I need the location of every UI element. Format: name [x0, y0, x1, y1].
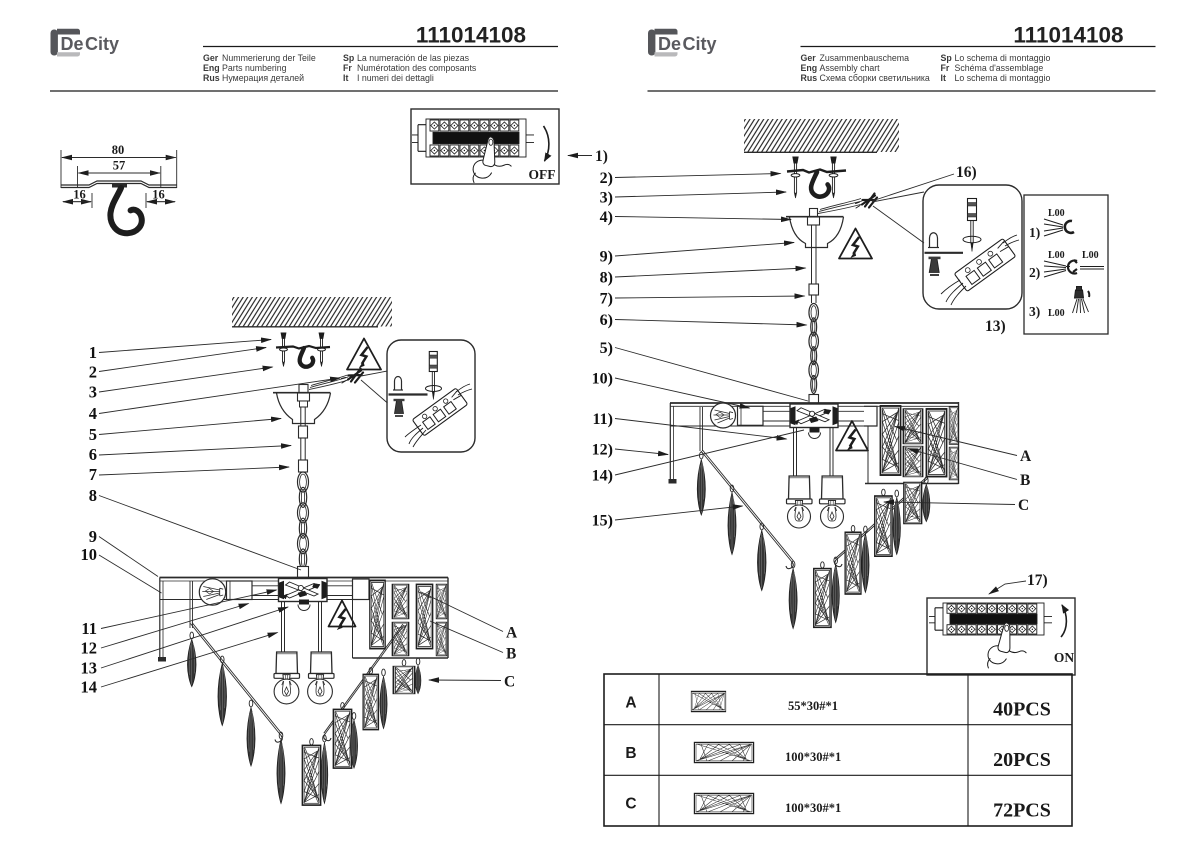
svg-text:Схема сборки светильника: Схема сборки светильника [820, 73, 930, 83]
svg-text:Eng: Eng [801, 63, 818, 73]
svg-text:Ger: Ger [801, 53, 817, 63]
svg-text:C: C [504, 674, 515, 691]
svg-text:2): 2) [1029, 265, 1040, 280]
svg-text:7: 7 [89, 465, 97, 484]
svg-text:10: 10 [81, 545, 98, 564]
svg-text:100*30#*1: 100*30#*1 [785, 750, 841, 764]
svg-text:55*30#*1: 55*30#*1 [788, 699, 838, 713]
svg-text:100*30#*1: 100*30#*1 [785, 801, 841, 815]
svg-text:It: It [941, 73, 946, 83]
svg-text:I numeri dei dettagli: I numeri dei dettagli [357, 73, 434, 83]
svg-text:3: 3 [89, 383, 97, 402]
svg-text:3): 3) [1029, 304, 1040, 319]
svg-text:40PCS: 40PCS [993, 699, 1051, 721]
svg-text:14: 14 [81, 678, 98, 697]
svg-text:B: B [1020, 472, 1030, 489]
svg-text:DeCity: DeCity [61, 34, 120, 54]
svg-text:B: B [506, 646, 516, 663]
svg-text:La numeración de las piezas: La numeración de las piezas [357, 53, 470, 63]
svg-text:Assembly chart: Assembly chart [820, 63, 881, 73]
svg-text:Rus: Rus [801, 73, 818, 83]
svg-text:3): 3) [600, 190, 613, 207]
svg-text:16: 16 [152, 188, 165, 202]
svg-text:1): 1) [595, 148, 608, 165]
svg-text:C: C [1018, 497, 1029, 514]
svg-text:Fr: Fr [941, 63, 950, 73]
svg-text:11): 11) [593, 411, 613, 428]
svg-text:Lo schema di montaggio: Lo schema di montaggio [955, 53, 1051, 63]
svg-text:L00: L00 [1048, 208, 1065, 219]
svg-text:7): 7) [600, 291, 613, 308]
svg-text:80: 80 [112, 143, 125, 157]
svg-text:20PCS: 20PCS [993, 749, 1051, 771]
svg-text:C: C [625, 796, 636, 813]
svg-text:Sp: Sp [343, 53, 355, 63]
svg-text:13): 13) [985, 318, 1006, 335]
svg-text:2: 2 [89, 363, 97, 382]
svg-text:12): 12) [592, 442, 613, 459]
svg-text:DeCity: DeCity [658, 34, 717, 54]
svg-text:5): 5) [600, 340, 613, 357]
svg-text:11: 11 [81, 619, 97, 638]
svg-text:Numérotation des composants: Numérotation des composants [357, 63, 477, 73]
svg-text:72PCS: 72PCS [993, 800, 1051, 822]
svg-text:OFF: OFF [529, 167, 556, 182]
svg-text:Nummerierung der Teile: Nummerierung der Teile [222, 53, 316, 63]
svg-text:57: 57 [113, 159, 126, 173]
svg-text:Нумерация деталей: Нумерация деталей [222, 73, 304, 83]
svg-text:17): 17) [1027, 572, 1048, 589]
svg-text:10): 10) [592, 371, 613, 388]
svg-text:Parts numbering: Parts numbering [222, 63, 287, 73]
svg-text:Schéma d'assemblage: Schéma d'assemblage [955, 63, 1044, 73]
svg-text:6): 6) [600, 312, 613, 329]
svg-text:8: 8 [89, 486, 97, 505]
svg-text:9): 9) [600, 249, 613, 266]
svg-text:B: B [625, 745, 636, 762]
svg-text:Zusammenbauschema: Zusammenbauschema [820, 53, 910, 63]
svg-text:14): 14) [592, 468, 613, 485]
svg-text:L00: L00 [1048, 308, 1065, 319]
svg-text:12: 12 [81, 639, 98, 658]
svg-text:9: 9 [89, 527, 97, 546]
svg-text:Eng: Eng [203, 63, 220, 73]
svg-text:111014108: 111014108 [416, 23, 526, 48]
svg-text:4: 4 [89, 404, 97, 423]
svg-text:6: 6 [89, 445, 97, 464]
svg-text:15): 15) [592, 513, 613, 530]
svg-text:Sp: Sp [941, 53, 953, 63]
svg-text:16: 16 [73, 188, 86, 202]
svg-text:ON: ON [1054, 650, 1075, 665]
svg-text:16): 16) [956, 164, 977, 181]
svg-text:A: A [506, 625, 518, 642]
svg-text:A: A [1020, 448, 1032, 465]
svg-text:111014108: 111014108 [1013, 23, 1123, 48]
svg-text:Rus: Rus [203, 73, 220, 83]
svg-text:Fr: Fr [343, 63, 352, 73]
svg-text:2): 2) [600, 170, 613, 187]
svg-text:13: 13 [81, 659, 98, 678]
svg-text:Ger: Ger [203, 53, 219, 63]
svg-text:8): 8) [600, 270, 613, 287]
svg-text:1: 1 [89, 343, 97, 362]
svg-text:4): 4) [600, 209, 613, 226]
svg-text:5: 5 [89, 425, 97, 444]
svg-text:It: It [343, 73, 348, 83]
svg-text:1): 1) [1029, 225, 1040, 240]
svg-text:Lo schema di montaggio: Lo schema di montaggio [955, 73, 1051, 83]
svg-text:L00: L00 [1048, 250, 1065, 261]
svg-text:L00: L00 [1082, 250, 1099, 261]
svg-text:A: A [625, 695, 636, 712]
